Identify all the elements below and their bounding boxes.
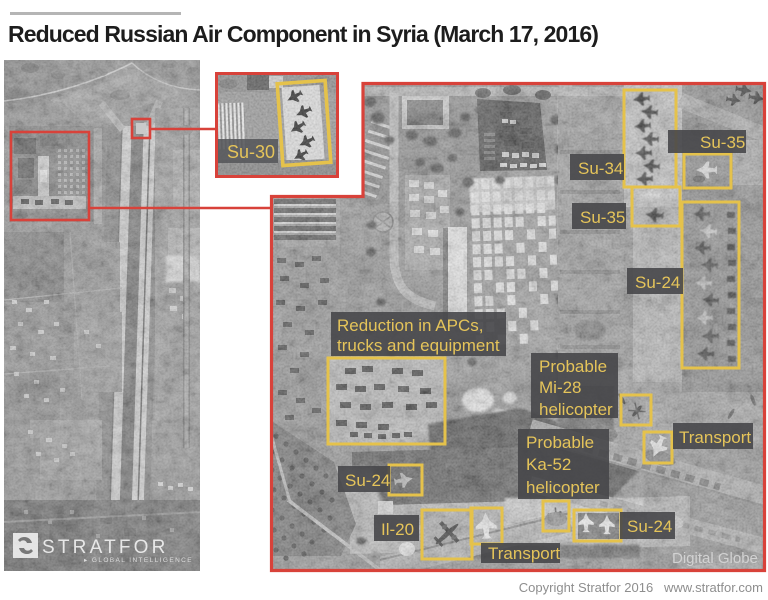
svg-text:Reduction in APCs,: Reduction in APCs, [337, 316, 483, 335]
svg-text:Su-24: Su-24 [627, 517, 672, 536]
svg-text:Mi-28: Mi-28 [539, 378, 582, 397]
svg-text:Su-35: Su-35 [700, 133, 745, 152]
svg-text:helicopter: helicopter [526, 478, 600, 497]
svg-text:▸ GLOBAL INTELLIGENCE: ▸ GLOBAL INTELLIGENCE [84, 557, 193, 564]
svg-text:Su-24: Su-24 [345, 471, 390, 490]
svg-text:STRATFOR: STRATFOR [42, 537, 169, 558]
svg-text:Transport: Transport [488, 544, 560, 563]
svg-text:helicopter: helicopter [539, 400, 613, 419]
svg-text:Il-20: Il-20 [381, 520, 414, 539]
svg-text:Su-34: Su-34 [578, 159, 623, 178]
svg-text:Su-30: Su-30 [227, 142, 275, 162]
svg-text:Ka-52: Ka-52 [526, 455, 571, 474]
svg-text:Digital Globe: Digital Globe [672, 550, 758, 567]
svg-text:Transport: Transport [679, 428, 751, 447]
svg-text:Su-24: Su-24 [635, 273, 680, 292]
svg-text:Probable: Probable [526, 433, 594, 452]
svg-text:Probable: Probable [539, 357, 607, 376]
svg-text:trucks and equipment: trucks and equipment [337, 336, 500, 355]
svg-text:Su-35: Su-35 [580, 208, 625, 227]
